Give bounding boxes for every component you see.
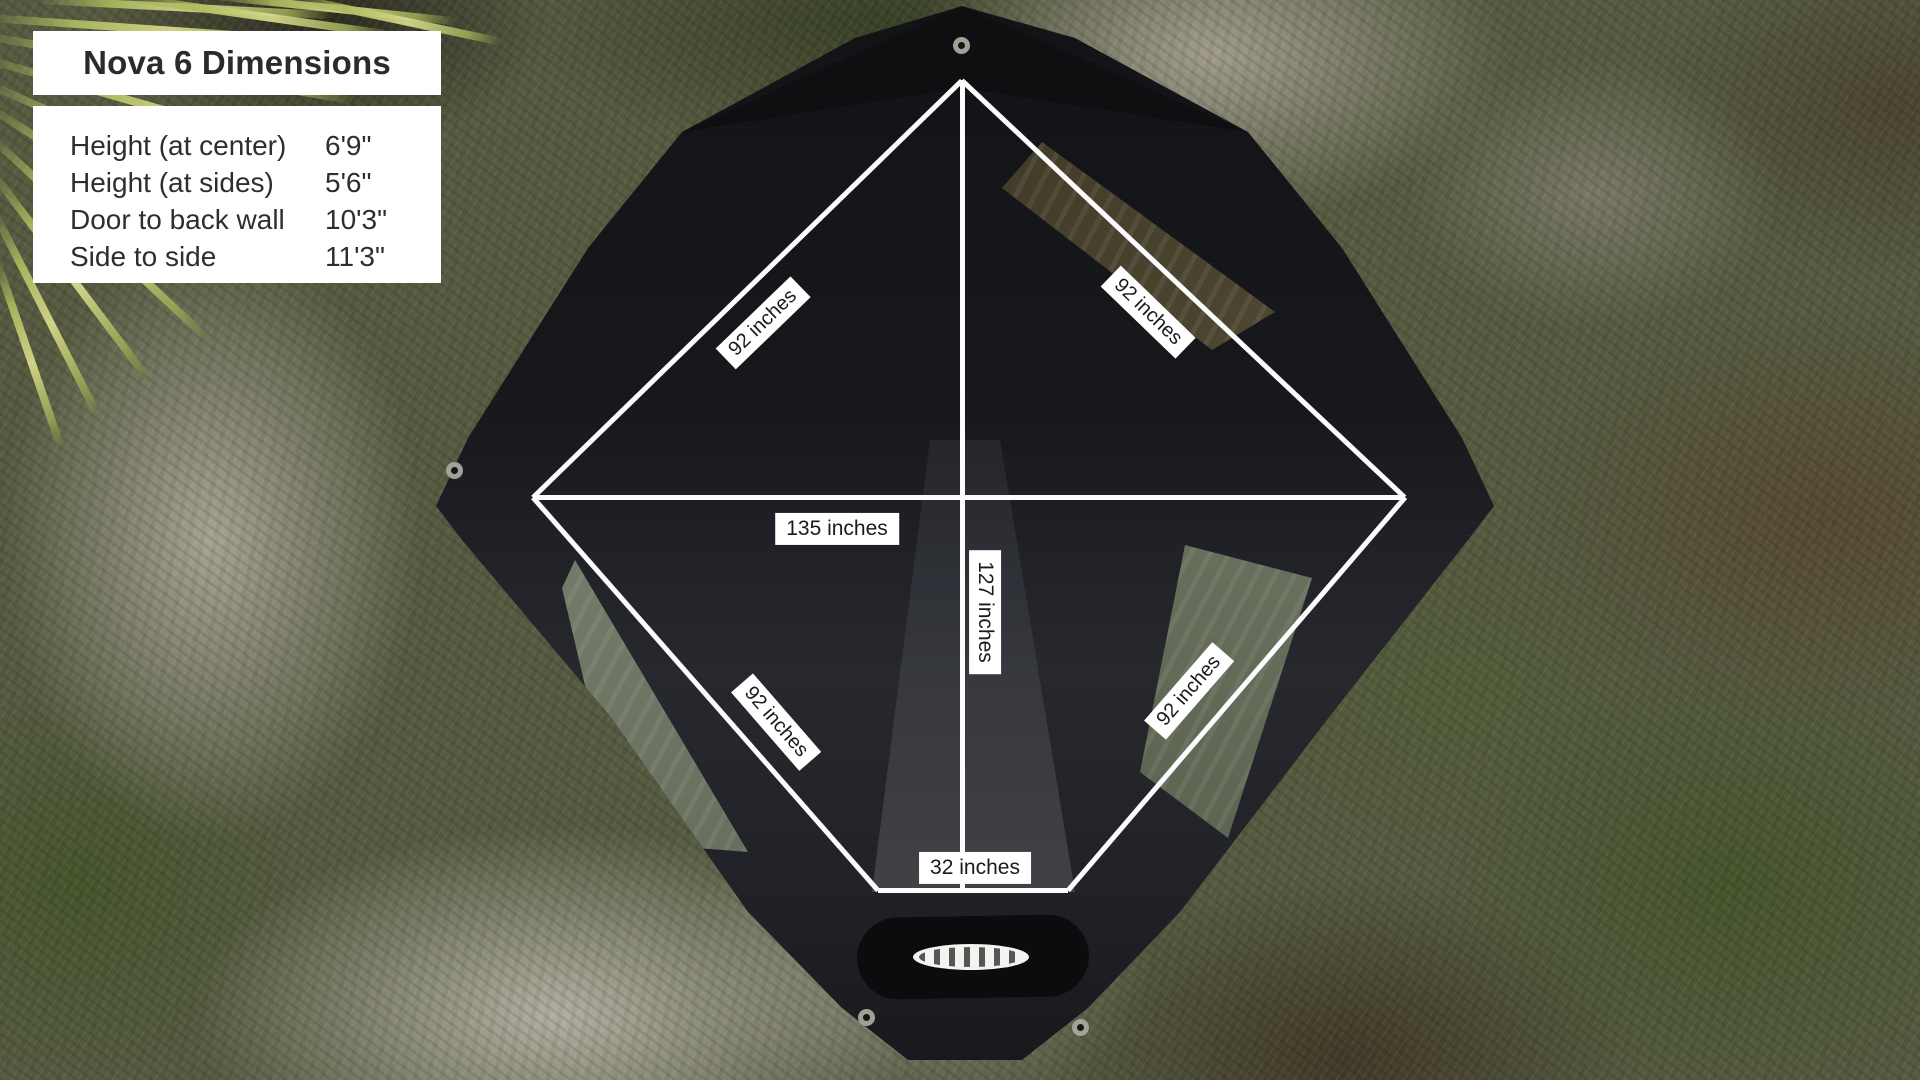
spec-label: Height (at center) <box>70 130 325 162</box>
spec-value: 5'6" <box>325 167 441 199</box>
dimensions-panel: Height (at center) 6'9" Height (at sides… <box>33 106 441 283</box>
measure-label-door-to-back: 127 inches <box>969 550 1001 674</box>
spec-row: Height (at center) 6'9" <box>70 127 441 164</box>
measure-label-door-width: 32 inches <box>919 852 1031 884</box>
measure-line-vertical <box>960 80 965 890</box>
spec-row: Door to back wall 10'3" <box>70 201 441 238</box>
grommet <box>858 1009 875 1026</box>
measure-line-horizontal <box>533 495 1405 500</box>
spec-row: Side to side 11'3" <box>70 238 441 275</box>
grommet <box>446 462 463 479</box>
dimensions-panel-title: Nova 6 Dimensions <box>33 31 441 95</box>
measure-label-side-to-side: 135 inches <box>775 513 899 545</box>
spec-label: Door to back wall <box>70 204 325 236</box>
spec-label: Height (at sides) <box>70 167 325 199</box>
spec-value: 11'3" <box>325 241 441 273</box>
spec-label: Side to side <box>70 241 325 273</box>
grommet <box>1072 1019 1089 1036</box>
spec-row: Height (at sides) 5'6" <box>70 164 441 201</box>
product-dimensions-image: 92 inches 92 inches 92 inches 92 inches … <box>0 0 1920 1080</box>
tent-door-vent <box>913 944 1029 970</box>
grommet <box>953 37 970 54</box>
spec-value: 6'9" <box>325 130 441 162</box>
measure-line-door-width <box>878 888 1068 893</box>
spec-value: 10'3" <box>325 204 441 236</box>
